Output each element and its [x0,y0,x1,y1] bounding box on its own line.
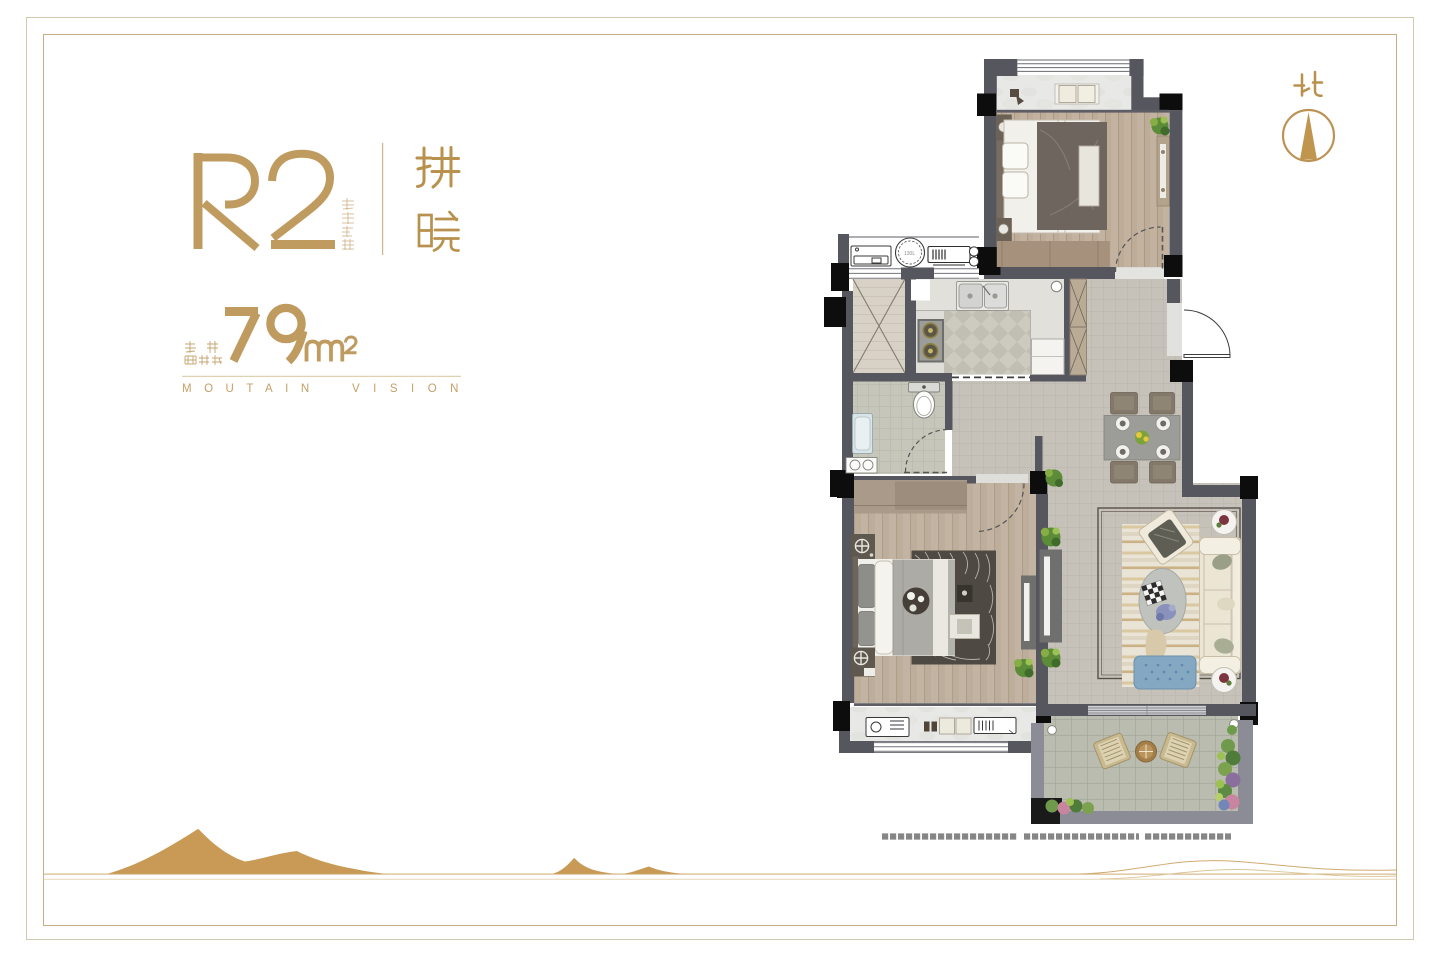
svg-text:130L: 130L [904,251,915,257]
svg-text:VISION: VISION [352,383,472,395]
svg-text:MOUTAIN: MOUTAIN [182,383,322,395]
